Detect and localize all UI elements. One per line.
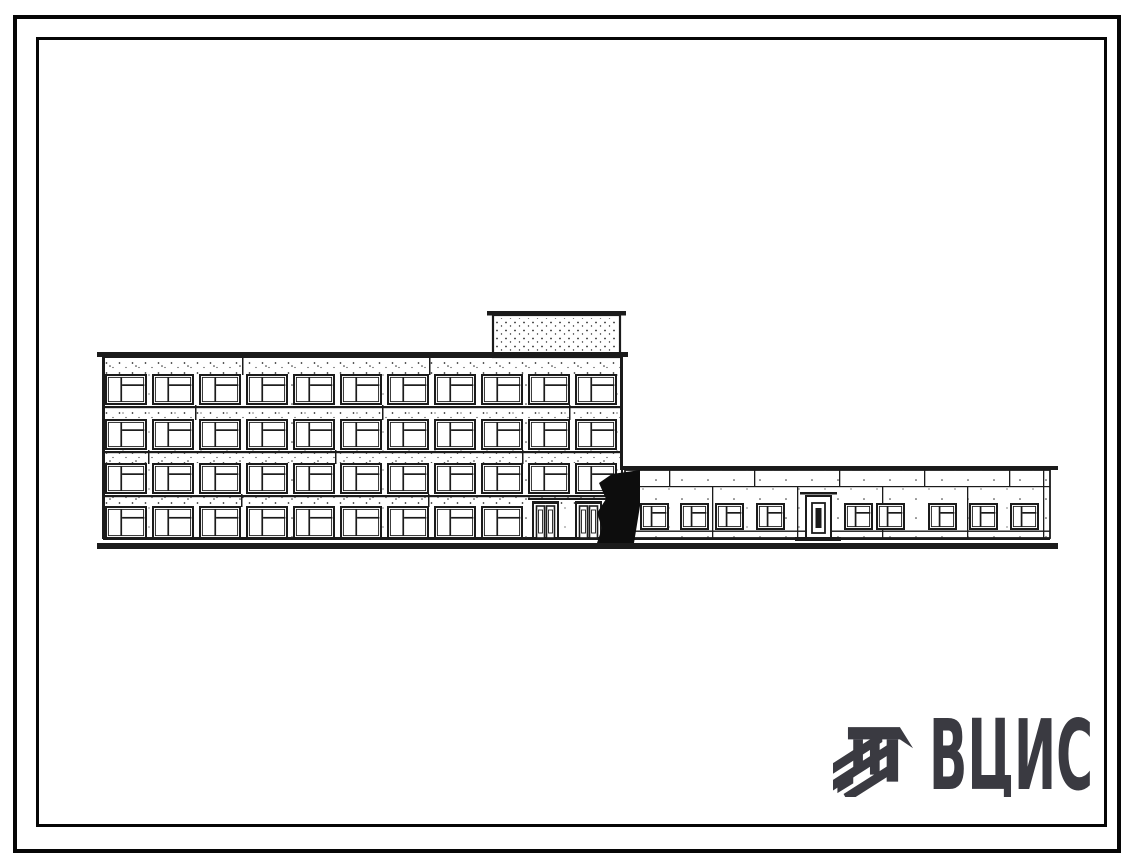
window [435, 375, 475, 404]
window [294, 420, 334, 449]
hatch-mark [833, 727, 913, 797]
entrance-shadow [597, 470, 640, 543]
vcis-hatch-icon [833, 717, 921, 797]
window [435, 507, 475, 538]
window [576, 375, 616, 404]
window [247, 464, 287, 493]
window [341, 507, 381, 538]
window [106, 507, 146, 538]
window [388, 464, 428, 493]
window [388, 507, 428, 538]
window [247, 420, 287, 449]
window [877, 504, 904, 529]
window [294, 375, 334, 404]
window [200, 507, 240, 538]
window [341, 375, 381, 404]
window [341, 420, 381, 449]
window [482, 375, 522, 404]
window [482, 464, 522, 493]
window [529, 420, 569, 449]
window [247, 375, 287, 404]
window [200, 375, 240, 404]
window [200, 464, 240, 493]
window [294, 464, 334, 493]
window [576, 420, 616, 449]
window [388, 420, 428, 449]
window [435, 420, 475, 449]
window [1011, 504, 1038, 529]
window [153, 420, 193, 449]
window [641, 504, 668, 529]
vcis-logo-wordmark: ВЦИС [928, 715, 1096, 797]
window [200, 420, 240, 449]
vcis-logo-text: ВЦИС [929, 715, 1093, 797]
window [341, 464, 381, 493]
window [106, 420, 146, 449]
window [845, 504, 872, 529]
window [716, 504, 743, 529]
window [388, 375, 428, 404]
window [482, 420, 522, 449]
window [247, 507, 287, 538]
window [294, 507, 334, 538]
window [153, 464, 193, 493]
window [435, 464, 475, 493]
window [529, 375, 569, 404]
window [970, 504, 997, 529]
window [106, 464, 146, 493]
drawing-sheet: ВЦИС [0, 0, 1134, 863]
wing [622, 466, 1058, 541]
ground-line [97, 543, 1058, 549]
vcis-logo: ВЦИС [833, 715, 1096, 797]
window [106, 375, 146, 404]
main-block [97, 311, 628, 540]
window [529, 464, 569, 493]
window [757, 504, 784, 529]
window [153, 375, 193, 404]
window [929, 504, 956, 529]
window [482, 507, 522, 538]
window [153, 507, 193, 538]
window [681, 504, 708, 529]
